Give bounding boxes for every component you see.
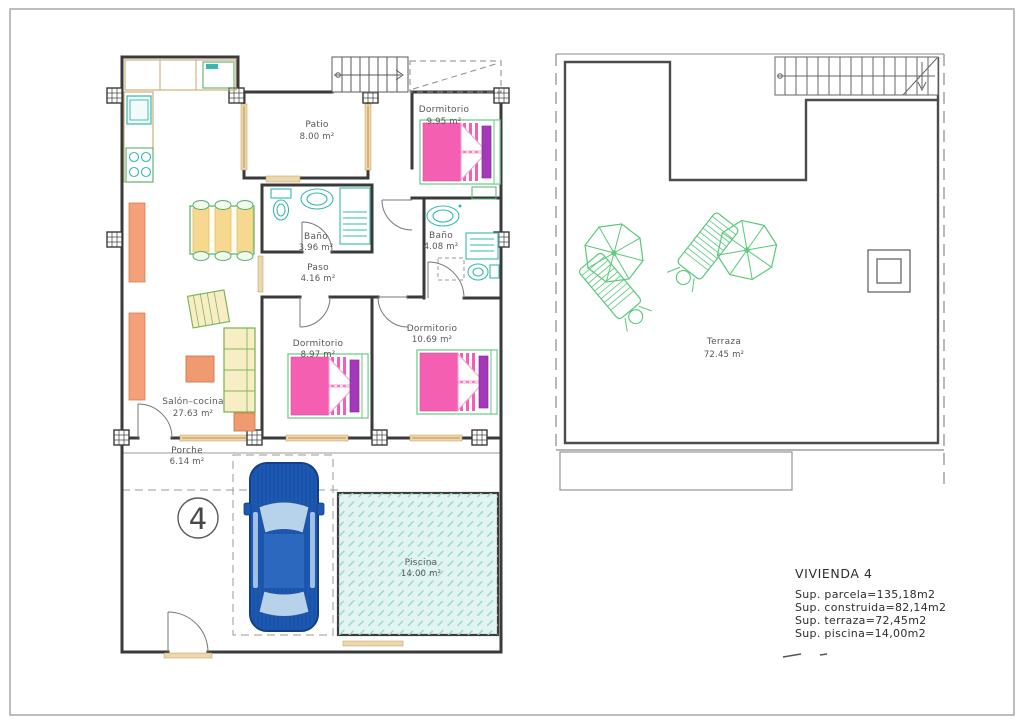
double-bed-icon: [420, 120, 500, 184]
room-area-dormitorio-3: 10.69 m²: [412, 335, 452, 345]
room-area-dormitorio-2: 8.97 m²: [301, 350, 336, 360]
double-bed-icon: [417, 350, 497, 414]
room-label-paso: Paso: [307, 263, 329, 273]
room-area-patio: 8.00 m²: [300, 132, 335, 142]
summary-line-construida: Sup. construida=82,14m2: [795, 601, 946, 614]
summary-line-parcela: Sup. parcela=135,18m2: [795, 588, 935, 601]
stairs-icon: [332, 57, 408, 92]
armchair: [187, 290, 229, 328]
room-area-salon: 27.63 m²: [173, 409, 213, 419]
room-label-dormitorio-1: Dormitorio: [419, 105, 470, 115]
tv-unit: [234, 413, 255, 431]
room-area-bano-1: 3.96 m²: [299, 243, 334, 253]
dining-table: [190, 201, 254, 261]
room-area-terraza: 72.45 m²: [704, 350, 744, 360]
room-label-terraza: Terraza: [706, 337, 741, 347]
room-label-dormitorio-2: Dormitorio: [293, 339, 344, 349]
toilet-icon: [468, 264, 499, 280]
room-area-piscina: 14.00 m²: [401, 569, 441, 579]
room-label-patio: Patio: [305, 120, 329, 130]
room-label-salon: Salón–cocina: [162, 396, 224, 407]
room-label-porche: Porche: [171, 446, 203, 456]
kitchen-sink-icon: [127, 96, 151, 124]
unit-number: 4: [189, 502, 207, 536]
drawing-sheet: 4 Patio 8.00 m² Dormitorio 9.95 m² Baño …: [0, 0, 1024, 724]
room-area-porche: 6.14 m²: [170, 457, 205, 467]
floor-plan-drawing: 4 Patio 8.00 m² Dormitorio 9.95 m² Baño …: [0, 0, 1024, 724]
summary-title: VIVIENDA 4: [795, 566, 873, 581]
coffee-table: [186, 356, 214, 382]
sideboard: [129, 203, 145, 282]
summary-line-terraza: Sup. terraza=72,45m2: [795, 614, 927, 627]
terrace-stairs-icon: [775, 57, 938, 95]
room-label-dormitorio-3: Dormitorio: [407, 324, 458, 334]
sink-icon: [427, 206, 459, 226]
sideboard: [129, 313, 145, 400]
double-bed-icon: [288, 354, 368, 418]
shower-icon: [340, 188, 370, 244]
room-label-bano-2: Baño: [429, 231, 453, 241]
sofa: [224, 328, 255, 412]
room-area-paso: 4.16 m²: [301, 274, 336, 284]
car-icon: [244, 463, 324, 631]
room-label-bano-1: Baño: [304, 232, 328, 242]
room-area-bano-2: 4.08 m²: [424, 242, 459, 252]
room-area-dormitorio-1: 9.95 m²: [427, 117, 462, 127]
room-label-piscina: Piscina: [405, 558, 438, 568]
summary-line-piscina: Sup. piscina=14,00m2: [795, 627, 926, 640]
shower-icon: [466, 233, 498, 259]
sink-icon: [301, 189, 333, 209]
